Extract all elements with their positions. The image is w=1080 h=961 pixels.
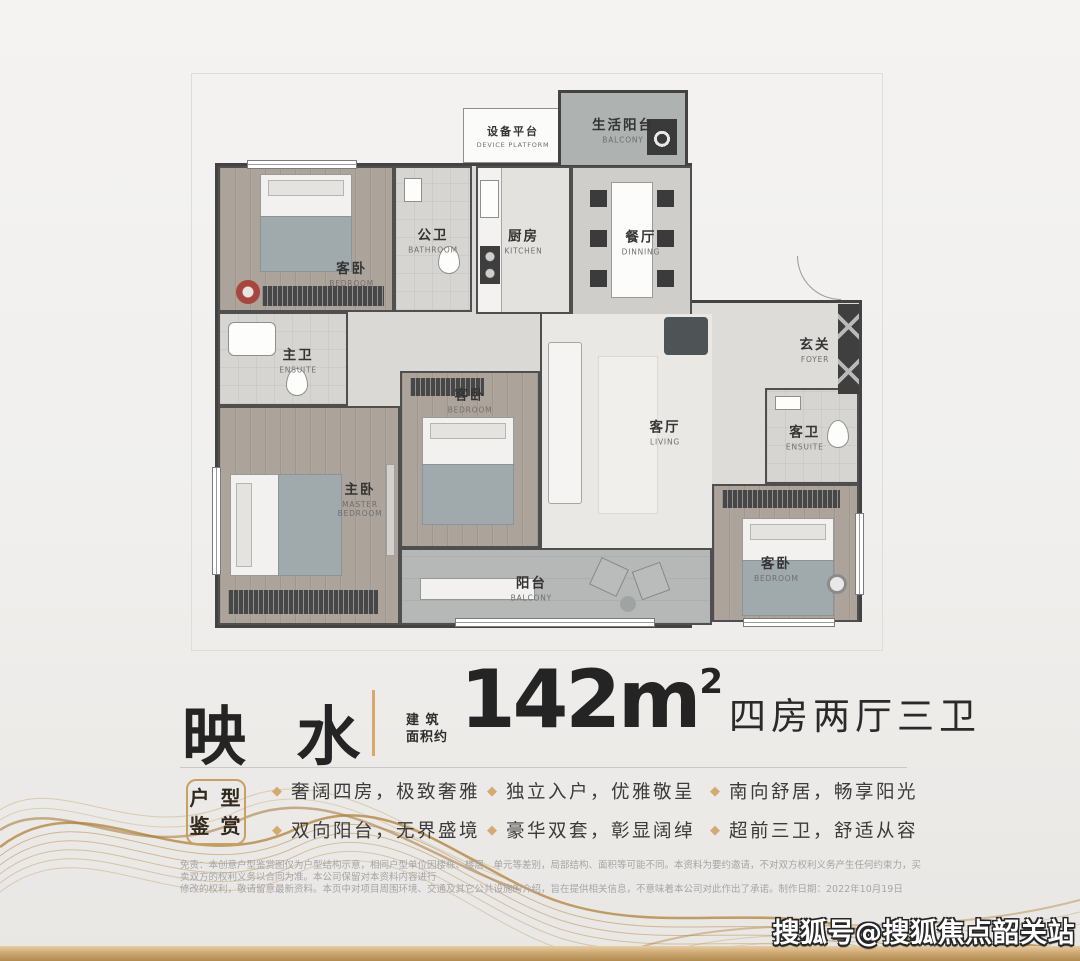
watermark: 搜狐号@搜狐焦点韶关站 (773, 911, 1076, 950)
bed-blanket (260, 216, 352, 272)
diamond-bullet-icon: ◆ (487, 824, 497, 837)
disclaimer-line2: 修改的权利，敬请留意最新资料。本页中对项目周围环境、交通及其它公共设施的介绍，旨… (180, 884, 926, 896)
dining-chair (590, 230, 607, 247)
feature-item: ◆ 双向阳台，无界盛境 (272, 819, 480, 841)
room-label-life-balcony: 生活阳台 BALCONY (592, 114, 654, 145)
bed (260, 174, 352, 272)
feature-item: ◆ 奢阔四房，极致奢雅 (272, 780, 480, 802)
bathroom-sink (404, 178, 422, 202)
room-balcony: 阳台 BALCONY (400, 548, 712, 625)
sofa (548, 342, 582, 504)
diamond-bullet-icon: ◆ (272, 785, 282, 798)
disclaimer: 免责：本创意户型鉴赏图仅为户型结构示意，相同户型单位因楼栋、楼层、单元等差别，局… (180, 860, 926, 896)
area-superscript: 2 (699, 662, 723, 702)
room-guest-bathroom: 客卫 ENSUITE (765, 388, 859, 484)
project-name: 映 水 (182, 686, 374, 778)
feature-item: ◆ 独立入户，优雅敬呈 (487, 780, 695, 802)
rug (598, 356, 658, 514)
wardrobe (228, 590, 378, 614)
room-label-device-platform: 设备平台 DEVICE PLATFORM (477, 123, 550, 149)
window (743, 618, 835, 627)
room-label-guest-bathroom: 客卫 ENSUITE (786, 421, 824, 452)
feature-column-3: ◆ 南向舒居，畅享阳光 ◆ 超前三卫，舒适从容 (710, 780, 918, 841)
room-device-platform: 设备平台 DEVICE PLATFORM (463, 108, 563, 163)
area-label: 建 筑 面积约 (406, 712, 450, 746)
washing-machine (647, 119, 677, 155)
room-kitchen: 厨房 KITCHEN (476, 166, 571, 314)
wardrobe (262, 286, 384, 306)
layout-text: 四房两厅三卫 (729, 686, 981, 740)
title-divider (372, 690, 375, 756)
room-master-bedroom: 主卧 MASTER BEDROOM (218, 406, 400, 625)
kitchen-sink (480, 180, 499, 218)
balcony-chair (632, 562, 670, 600)
wardrobe (410, 378, 484, 396)
bed-blanket (742, 560, 834, 616)
diamond-bullet-icon: ◆ (487, 785, 497, 798)
round-chair (236, 280, 260, 304)
stove (480, 246, 500, 284)
title-area-group: 建 筑 面积约 142m 2 四房两厅三卫 (406, 660, 981, 746)
room-living: 客厅 LIVING (540, 314, 712, 548)
bed-pillow (750, 524, 826, 540)
armchair (664, 317, 708, 355)
dining-chair (657, 190, 674, 207)
room-guest-bedroom-north: 客卧 BEDROOM (218, 166, 394, 312)
feature-item: ◆ 超前三卫，舒适从容 (710, 819, 918, 841)
balcony-bench (420, 578, 535, 600)
diamond-bullet-icon: ◆ (710, 824, 720, 837)
diamond-bullet-icon: ◆ (272, 824, 282, 837)
wardrobe (722, 490, 840, 508)
room-guest-bedroom-middle: 客卧 BEDROOM (400, 371, 540, 548)
toilet (438, 246, 460, 274)
balcony-chair (589, 557, 629, 597)
bathtub (228, 322, 276, 356)
feature-item: ◆ 南向舒居，畅享阳光 (710, 780, 918, 802)
bed (742, 518, 834, 616)
dining-chair (590, 190, 607, 207)
room-dining: 餐厅 DINNING (571, 166, 692, 314)
toilet (827, 420, 849, 448)
dining-table (611, 182, 653, 298)
room-label-foyer: 玄关 FOYER (768, 333, 862, 364)
area-label-line1: 建 筑 (406, 712, 450, 729)
bed (422, 417, 514, 525)
balcony-table (620, 596, 636, 612)
window (247, 160, 357, 169)
area-number: 142m (460, 660, 698, 740)
bed-pillow (236, 483, 252, 567)
bed-blanket (422, 464, 514, 525)
area-label-line2: 面积约 (406, 729, 450, 746)
feature-badge-line1: 户 型 (190, 784, 243, 812)
window (212, 467, 221, 575)
dining-chair (657, 270, 674, 287)
dining-chair (657, 230, 674, 247)
title-underline (180, 767, 907, 768)
diamond-bullet-icon: ◆ (710, 785, 720, 798)
room-label-kitchen: 厨房 KITCHEN (504, 225, 542, 256)
dining-chair (590, 270, 607, 287)
feature-badge-line2: 鉴 赏 (190, 812, 243, 840)
disclaimer-line1: 免责：本创意户型鉴赏图仅为户型结构示意，相同户型单位因楼栋、楼层、单元等差别，局… (180, 860, 926, 884)
window (855, 513, 864, 595)
feature-column-2: ◆ 独立入户，优雅敬呈 ◆ 豪华双套，彰显阔绰 (487, 780, 695, 841)
bed-blanket (278, 474, 342, 576)
feature-column-1: ◆ 奢阔四房，极致奢雅 ◆ 双向阳台，无界盛境 (272, 780, 480, 841)
round-chair (827, 574, 847, 594)
bed-pillow (430, 423, 506, 439)
room-guest-bedroom-south: 客卧 BEDROOM (712, 484, 859, 622)
room-master-bathroom: 主卫 ENSUITE (218, 312, 348, 406)
toilet (286, 368, 308, 396)
feature-item: ◆ 豪华双套，彰显阔绰 (487, 819, 695, 841)
room-public-bathroom: 公卫 BATHROOM (394, 166, 472, 312)
tv-cabinet (386, 464, 395, 556)
bed (230, 474, 342, 576)
floor-plan: 设备平台 DEVICE PLATFORM 生活阳台 BALCONY 客卧 BED… (205, 85, 870, 640)
feature-badge: 户 型 鉴 赏 (186, 779, 246, 845)
window (455, 618, 655, 627)
room-life-balcony: 生活阳台 BALCONY (558, 90, 688, 168)
bed-pillow (268, 180, 344, 196)
bathroom-sink (775, 396, 801, 410)
